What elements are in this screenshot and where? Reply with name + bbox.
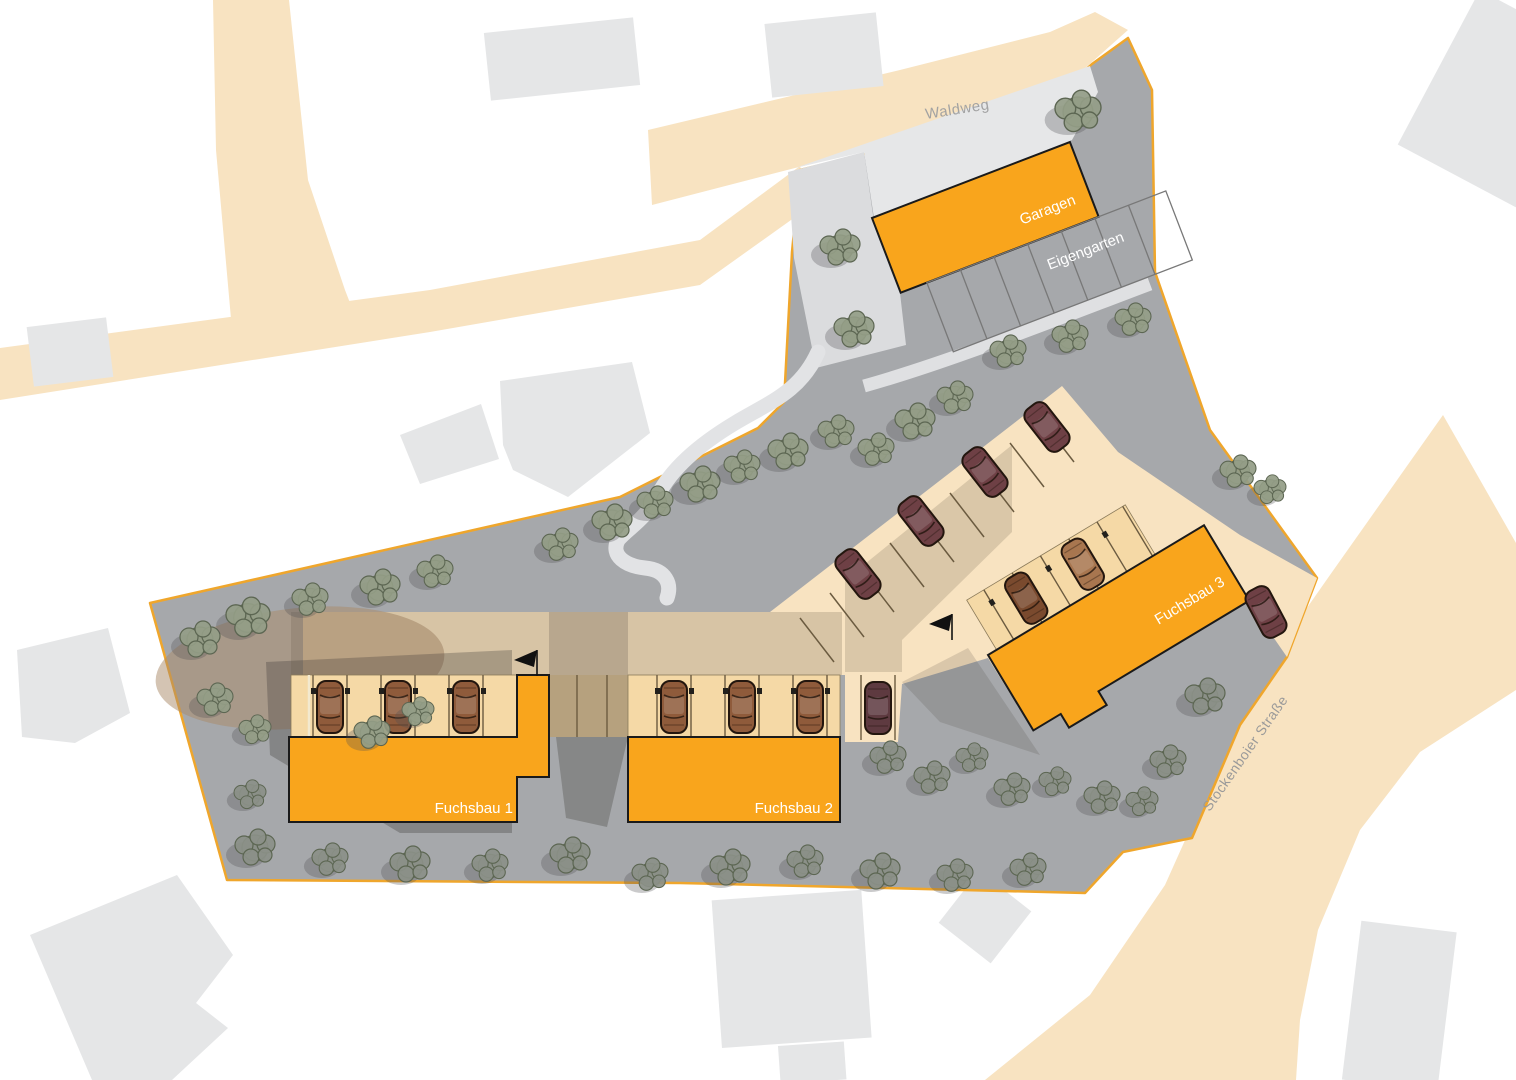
site-plan-map: Garagen Eigengarten Fuchsbau 1 Fuchsbau … xyxy=(0,0,1516,1080)
car xyxy=(797,681,823,733)
label-fuchsbau-1: Fuchsbau 1 xyxy=(435,800,513,817)
car xyxy=(865,682,891,734)
context-building xyxy=(712,890,872,1048)
car xyxy=(453,681,479,733)
shadow-gap xyxy=(549,612,628,737)
label-fuchsbau-2: Fuchsbau 2 xyxy=(755,800,833,817)
context-building xyxy=(778,1041,846,1080)
context-building xyxy=(27,317,114,386)
car xyxy=(661,681,687,733)
shadow-fuchsbau1 xyxy=(291,612,549,675)
site-plan-page: Garagen Eigengarten Fuchsbau 1 Fuchsbau … xyxy=(0,0,1516,1080)
car xyxy=(317,681,343,733)
car xyxy=(729,681,755,733)
context-building xyxy=(764,12,883,97)
shadow-fuchsbau2 xyxy=(628,612,842,675)
context-building xyxy=(1342,921,1457,1080)
